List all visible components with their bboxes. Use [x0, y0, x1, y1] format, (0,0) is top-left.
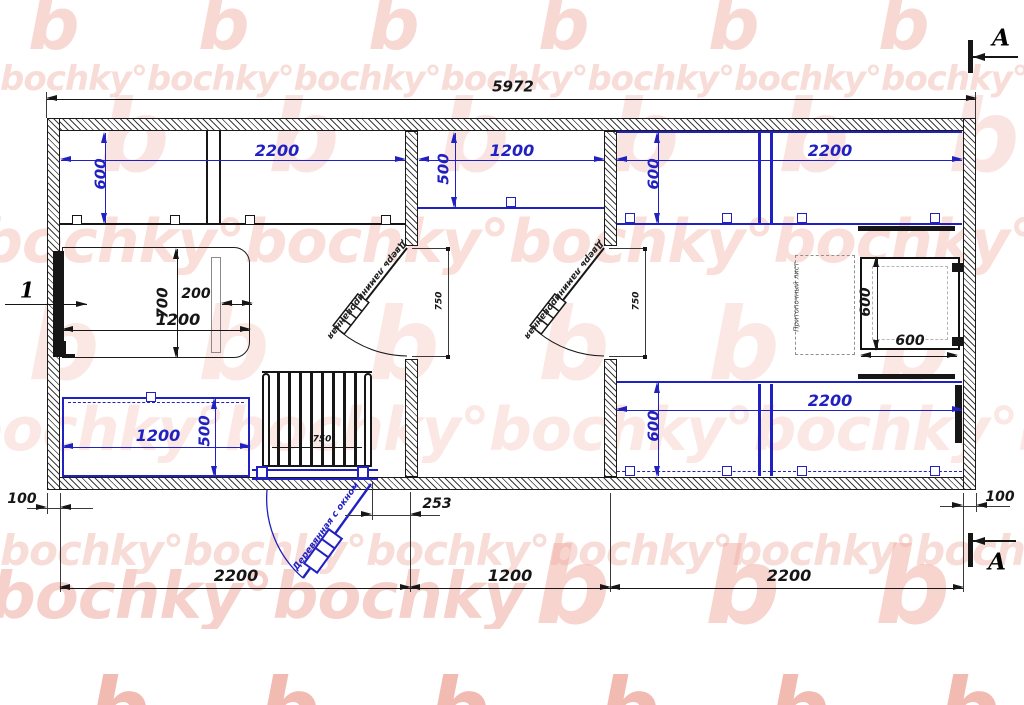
section-marker-top-label: A: [992, 27, 1010, 50]
floor-plan-canvas: bbbbbbbochky°bochky°bochky°bochky°bochky…: [0, 0, 1024, 705]
text-labels-layer: Дверь ламинированная Дверь ламинированна…: [0, 0, 1024, 705]
entrance-door-label: Деревянная с окном: [292, 481, 362, 572]
stove-sheet-label: Притопочный лист: [794, 262, 801, 331]
interior-door2-label: Дверь ламинированная: [522, 238, 605, 340]
interior-door1-label: Дверь ламинированная: [325, 238, 408, 340]
view-marker-label: 1: [20, 280, 35, 301]
section-marker-bottom-label: A: [988, 551, 1006, 574]
